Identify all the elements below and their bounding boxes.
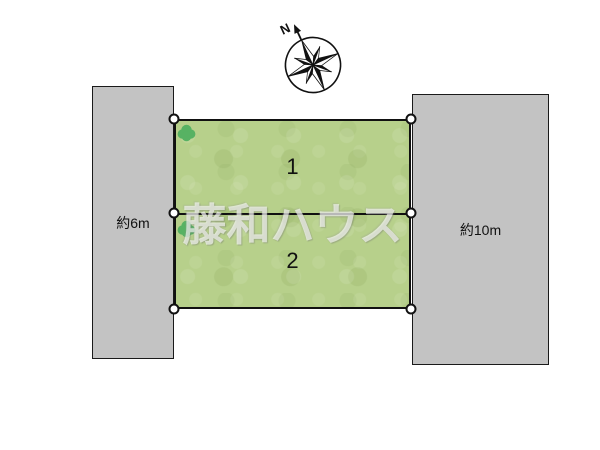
vertex-marker [406, 114, 417, 125]
tree-icon [176, 219, 197, 240]
plot-1: 1 [176, 121, 409, 213]
plot-2-number: 2 [286, 248, 298, 274]
road-right: 約10m [412, 94, 549, 365]
vertex-marker [169, 208, 180, 219]
compass-rose-icon: N [263, 8, 363, 108]
vertex-marker [169, 114, 180, 125]
vertex-marker [406, 304, 417, 315]
road-left: 約6m [92, 86, 174, 359]
tree-icon [176, 123, 197, 144]
site-plan-canvas: N 約6m 約10m 1 2 [0, 0, 600, 450]
vertex-marker [169, 304, 180, 315]
plot-2: 2 [176, 215, 409, 307]
plot-1-number: 1 [286, 154, 298, 180]
lot-block: 1 2 [174, 119, 411, 309]
vertex-marker [406, 208, 417, 219]
road-right-width-label: 約10m [460, 220, 501, 240]
compass-north-label: N [278, 20, 293, 38]
road-left-width-label: 約6m [116, 213, 149, 233]
